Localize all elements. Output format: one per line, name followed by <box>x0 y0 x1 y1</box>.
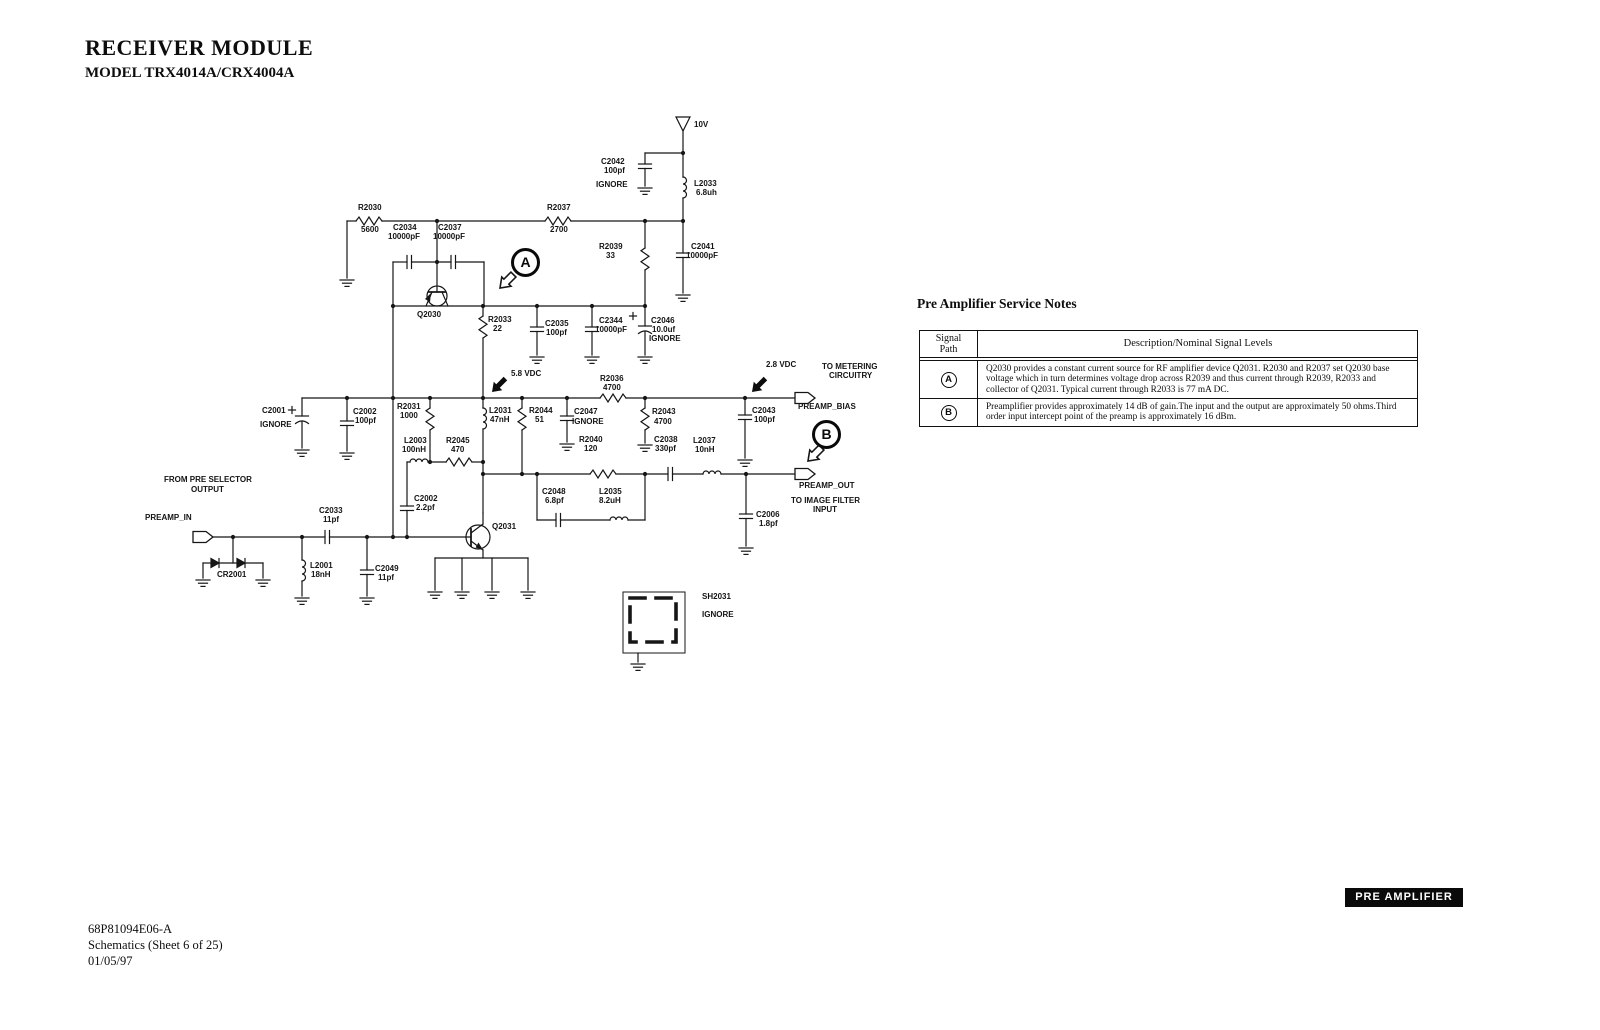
res-r2044-icon <box>518 408 526 430</box>
label-c2344-val: 10000pF <box>595 326 627 334</box>
label-l2035-ref: L2035 <box>599 488 622 496</box>
label-l2001-ref: L2001 <box>310 562 333 570</box>
header-signal: Signal <box>936 333 962 344</box>
schematic-page: RECEIVER MODULE MODEL TRX4014A/CRX4004A <box>0 0 1600 1030</box>
label-c2035-val: 100pf <box>546 329 567 337</box>
coil-l2037-icon <box>703 471 721 474</box>
coil-l2033-icon <box>683 177 687 198</box>
label-c2033-val: 11pf <box>323 516 339 524</box>
label-c2042-note: IGNORE <box>596 181 628 189</box>
label-c2037-val: 10000pF <box>433 233 465 241</box>
coil-l2003-icon <box>410 459 428 462</box>
inductor-icons <box>302 177 721 581</box>
label-sh2031-ref: SH2031 <box>702 593 731 601</box>
label-preamp-out: PREAMP_OUT <box>799 482 855 490</box>
table-header-signal-path: Signal Path <box>920 331 978 357</box>
circled-a-icon: A <box>941 372 957 388</box>
cap-c2042-icon <box>639 164 652 169</box>
label-r2045-val: 470 <box>451 446 464 454</box>
res-r2036-icon <box>600 394 626 402</box>
cap-c2048-icon <box>556 514 561 527</box>
label-r2043-ref: R2043 <box>652 408 676 416</box>
label-r2030-val: 5600 <box>361 226 379 234</box>
res-r2037-icon <box>545 217 571 225</box>
label-l2037-val: 10nH <box>695 446 715 454</box>
supply-terminal-icon <box>676 117 690 131</box>
label-l2035-val: 8.2uH <box>599 497 621 505</box>
row-a-description: Q2030 provides a constant current source… <box>978 361 1417 398</box>
diode-cr2001b-icon <box>237 559 245 568</box>
label-l2031-val: 47nH <box>490 416 510 424</box>
shield-sh2031-icon <box>623 592 685 662</box>
cap-c2006-icon <box>740 514 753 519</box>
callout-b-badge: B <box>812 420 841 449</box>
row-b-path-cell: B <box>920 399 978 426</box>
label-cr2001: CR2001 <box>217 571 246 579</box>
label-l2031-ref: L2031 <box>489 407 512 415</box>
row-b-description: Preamplifier provides approximately 14 d… <box>978 399 1417 426</box>
row-a-path-cell: A <box>920 361 978 398</box>
label-c2046-val: 10.0uf <box>652 326 675 334</box>
service-notes-table: Signal Path Description/Nominal Signal L… <box>919 330 1418 427</box>
label-l2033-val: 6.8uh <box>696 189 717 197</box>
label-c2043-val: 100pf <box>754 416 775 424</box>
label-preamp-in: PREAMP_IN <box>145 514 192 522</box>
voltage-arrow-5v8-icon <box>488 374 510 396</box>
label-c2042-ref: C2042 <box>601 158 625 166</box>
label-10v: 10V <box>694 121 708 129</box>
label-c2034-val: 10000pF <box>388 233 420 241</box>
label-c2033-ref: C2033 <box>319 507 343 515</box>
footer-part-number: 68P81094E06-A <box>88 921 223 937</box>
label-c2049-val: 11pf <box>378 574 394 582</box>
cap-c2049-icon <box>361 570 374 575</box>
header-path: Path <box>936 344 962 355</box>
cap-c2033-icon <box>325 531 330 544</box>
coil-l2031-icon <box>483 408 487 429</box>
label-q2030: Q2030 <box>417 311 441 319</box>
label-c2002a-ref: C2002 <box>353 408 377 416</box>
label-c2001-ref: C2001 <box>262 407 286 415</box>
circled-b-icon: B <box>941 405 957 421</box>
res-r2045-icon <box>446 458 472 466</box>
label-c2002a-val: 100pf <box>355 417 376 425</box>
res-r2039-icon <box>641 248 649 270</box>
label-r2036-val: 4700 <box>603 384 621 392</box>
label-l2003-val: 100nH <box>402 446 426 454</box>
label-to-metering-2: CIRCUITRY <box>829 372 872 380</box>
label-l2037-ref: L2037 <box>693 437 716 445</box>
label-c2043-ref: C2043 <box>752 407 776 415</box>
label-r2030-ref: R2030 <box>358 204 382 212</box>
label-c2006-ref: C2006 <box>756 511 780 519</box>
label-c2048-val: 6.8pf <box>545 497 564 505</box>
label-c2048-ref: C2048 <box>542 488 566 496</box>
label-r2040-val: 120 <box>584 445 597 453</box>
coil-l2035-icon <box>610 517 628 520</box>
res-r2033-icon <box>479 316 487 338</box>
label-c2047-note: IGNORE <box>572 418 604 426</box>
preamp-out-terminal <box>795 469 815 480</box>
table-header-row: Signal Path Description/Nominal Signal L… <box>920 331 1417 361</box>
label-c2049-ref: C2049 <box>375 565 399 573</box>
label-r2031-ref: R2031 <box>397 403 421 411</box>
footer-date: 01/05/97 <box>88 953 223 969</box>
label-c2002b-ref: C2002 <box>414 495 438 503</box>
cap-c2046-icon <box>630 313 652 334</box>
label-r2037-ref: R2037 <box>547 204 571 212</box>
label-r2040-ref: R2040 <box>579 436 603 444</box>
label-c2041-val: 10000pF <box>686 252 718 260</box>
pre-amplifier-badge: PRE AMPLIFIER <box>1345 888 1463 907</box>
label-r2043-val: 4700 <box>654 418 672 426</box>
label-c2002b-val: 2.2pf <box>416 504 435 512</box>
cap-c2002b-icon <box>401 506 414 511</box>
cap-c2037-icon <box>451 256 456 269</box>
res-r2030-icon <box>356 217 382 225</box>
label-r2033-ref: R2033 <box>488 316 512 324</box>
footer: 68P81094E06-A Schematics (Sheet 6 of 25)… <box>88 921 223 969</box>
cap-c2034-icon <box>407 256 412 269</box>
label-preamp-bias: PREAMP_BIAS <box>798 403 856 411</box>
label-c2038-val: 330pf <box>655 445 676 453</box>
label-l2033-ref: L2033 <box>694 180 717 188</box>
table-row-b: B Preamplifier provides approximately 14… <box>920 399 1417 426</box>
label-l2003-ref: L2003 <box>404 437 427 445</box>
label-c2006-val: 1.8pf <box>759 520 778 528</box>
diode-cr2001a-icon <box>211 559 219 568</box>
preamp-in-terminal <box>193 532 213 543</box>
label-r2044-ref: R2044 <box>529 407 553 415</box>
footer-sheet: Schematics (Sheet 6 of 25) <box>88 937 223 953</box>
label-r2039-ref: R2039 <box>599 243 623 251</box>
label-r2039-val: 33 <box>606 252 615 260</box>
label-sh2031-note: IGNORE <box>702 611 734 619</box>
label-to-metering-1: TO METERING <box>822 363 877 371</box>
label-c2042-val: 100pf <box>604 167 625 175</box>
label-r2037-val: 2700 <box>550 226 568 234</box>
label-from-pre-selector-1: FROM PRE SELECTOR <box>164 476 252 484</box>
label-c2037-ref: C2037 <box>438 224 462 232</box>
table-row-a: A Q2030 provides a constant current sour… <box>920 361 1417 399</box>
cap-c2043-icon <box>739 415 752 420</box>
res-r2040-icon <box>590 470 616 478</box>
label-5v8: 5.8 VDC <box>511 370 541 378</box>
label-c2034-ref: C2034 <box>393 224 417 232</box>
res-r2043-icon <box>641 408 649 430</box>
label-r2044-val: 51 <box>535 416 544 424</box>
label-c2001-note: IGNORE <box>260 421 292 429</box>
label-from-pre-selector-2: OUTPUT <box>191 486 224 494</box>
label-r2036-ref: R2036 <box>600 375 624 383</box>
label-c2344-ref: C2344 <box>599 317 623 325</box>
label-c2041-ref: C2041 <box>691 243 715 251</box>
label-c2035-ref: C2035 <box>545 320 569 328</box>
label-2v8: 2.8 VDC <box>766 361 796 369</box>
cap-c2035-icon <box>531 327 544 332</box>
label-q2031: Q2031 <box>492 523 516 531</box>
table-header-description: Description/Nominal Signal Levels <box>978 331 1417 357</box>
junction-dots <box>231 151 748 539</box>
label-c2046-ref: C2046 <box>651 317 675 325</box>
label-c2038-ref: C2038 <box>654 436 678 444</box>
label-r2033-val: 22 <box>493 325 502 333</box>
schematic-canvas <box>0 0 1600 1030</box>
callout-a-arrow-icon <box>495 270 518 293</box>
label-to-image-2: INPUT <box>813 506 837 514</box>
label-l2001-val: 18nH <box>311 571 331 579</box>
notes-title: Pre Amplifier Service Notes <box>917 296 1077 311</box>
label-r2045-ref: R2045 <box>446 437 470 445</box>
callout-a-badge: A <box>511 248 540 277</box>
voltage-arrow-2v8-icon <box>748 374 770 396</box>
res-r2031-icon <box>426 408 434 430</box>
label-c2046-note: IGNORE <box>649 335 681 343</box>
coil-l2001-icon <box>302 560 306 581</box>
cap-c2038-icon <box>668 468 673 481</box>
label-to-image-1: TO IMAGE FILTER <box>791 497 860 505</box>
label-c2047-ref: C2047 <box>574 408 598 416</box>
label-r2031-val: 1000 <box>400 412 418 420</box>
cap-c2002a-icon <box>341 421 354 426</box>
